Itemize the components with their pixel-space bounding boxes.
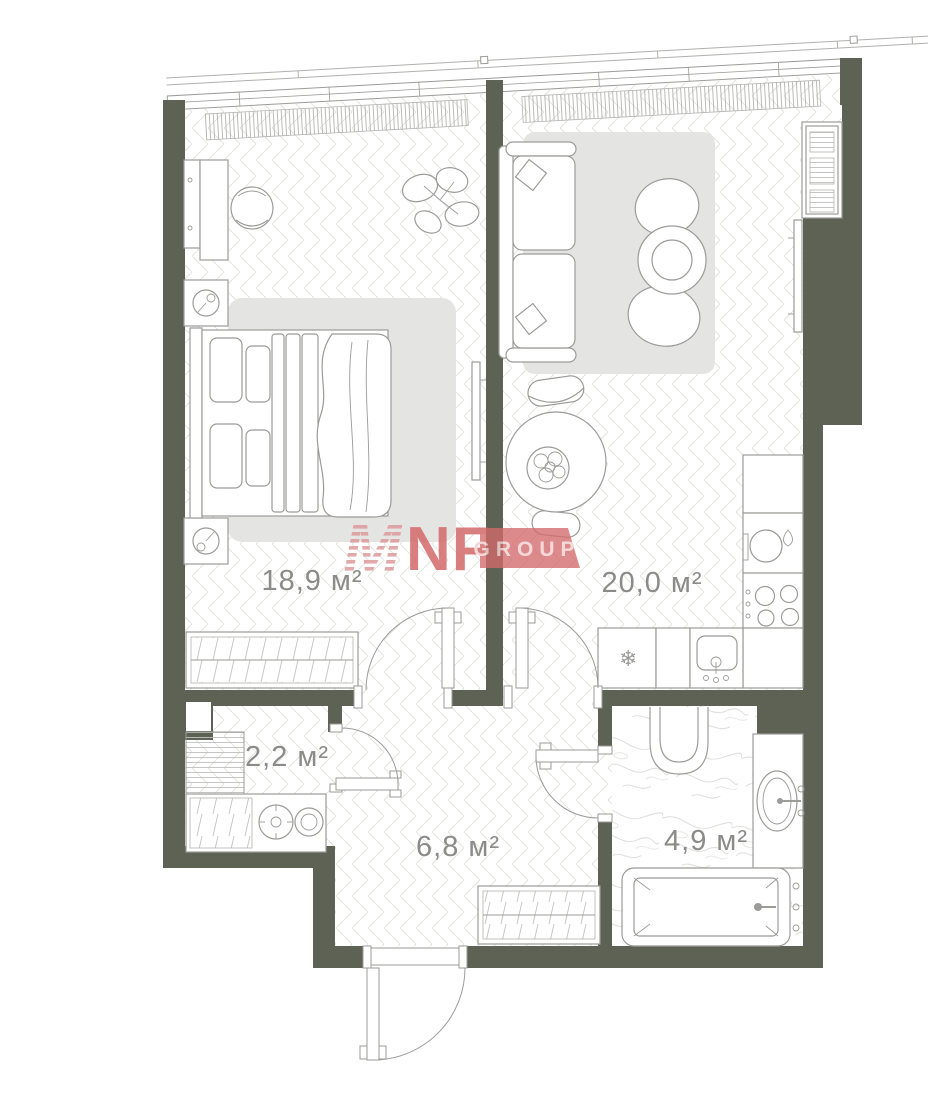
entrance-door xyxy=(360,946,467,1060)
cooktop xyxy=(743,573,803,628)
freezer-icon: ❄ xyxy=(619,646,637,671)
kitchen-sink xyxy=(690,628,743,688)
storage-shelves xyxy=(186,732,244,794)
duvet xyxy=(317,334,391,517)
nf-logo-mark: M xyxy=(343,509,403,587)
wall-niche xyxy=(186,702,211,731)
hallway-area-label: 6,8 м² xyxy=(416,831,500,863)
bathroom-area-label: 4,9 м² xyxy=(664,825,748,857)
kitchen-tall-unit xyxy=(743,455,803,513)
hallway-wardrobe xyxy=(478,886,600,944)
console-desk xyxy=(184,160,228,260)
toilet xyxy=(650,707,708,774)
desk-chair xyxy=(231,187,273,229)
hallway xyxy=(478,886,600,944)
nightstand-top xyxy=(184,280,228,326)
kitchen-sink-unit xyxy=(743,513,803,573)
bathtub xyxy=(622,868,799,946)
floorplan-canvas: ❄ xyxy=(0,0,928,1101)
kitchen-counter xyxy=(656,628,690,688)
storage-area-label: 2,2 м² xyxy=(245,741,329,773)
bedroom-wardrobe xyxy=(186,632,358,688)
nightstand-bottom xyxy=(184,518,228,564)
floorplan-drawing: ❄ xyxy=(0,0,928,1101)
living-area-label: 20,0 м² xyxy=(601,567,702,599)
sideboard xyxy=(802,122,842,218)
vanity-sink xyxy=(753,734,804,868)
nf-logo-suffix: GROUP xyxy=(473,538,580,561)
double-bed xyxy=(190,328,391,518)
kitchen-corner-counter xyxy=(743,628,803,688)
fridge: ❄ xyxy=(598,628,656,688)
laundry-counter xyxy=(186,794,326,852)
